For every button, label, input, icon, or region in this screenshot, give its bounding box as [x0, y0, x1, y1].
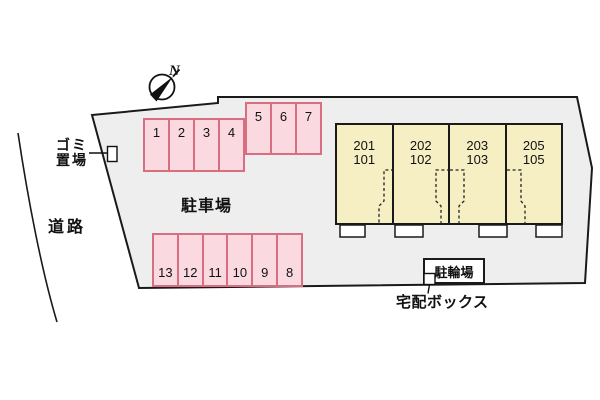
parking-row-1-4: 1 2 3 4	[143, 118, 245, 172]
unit-number-upper: 205	[507, 139, 562, 153]
parking-space-5: 5	[247, 104, 270, 153]
parking-row-5-7: 5 6 7	[245, 102, 322, 155]
unit-number-lower: 101	[337, 153, 392, 167]
garbage-label-line1: ゴミ	[56, 138, 88, 153]
parking-space-2: 2	[168, 120, 193, 170]
garbage-area-label: ゴミ 置場	[56, 138, 88, 168]
parking-space-7: 7	[295, 104, 320, 153]
porch-unit-205	[536, 225, 562, 237]
parking-space-10: 10	[226, 235, 251, 285]
parking-space-4: 4	[218, 120, 243, 170]
parking-space-1: 1	[145, 120, 168, 170]
bicycle-parking-box: 駐輪場	[423, 258, 485, 284]
parking-space-11: 11	[202, 235, 227, 285]
building-unit-202-102: 202 102	[392, 125, 449, 223]
unit-number-upper: 203	[450, 139, 505, 153]
porch-unit-202	[395, 225, 423, 237]
parking-lot-label: 駐車場	[181, 192, 232, 216]
site-plan: 1 2 3 4 5 6 7 13 12 11 10 9 8 201 101 20…	[0, 0, 600, 400]
parking-space-3: 3	[193, 120, 218, 170]
apartment-building: 201 101 202 102 203 103 205 105	[335, 123, 563, 225]
building-unit-201-101: 201 101	[337, 125, 392, 223]
building-unit-203-103: 203 103	[448, 125, 505, 223]
garbage-label-line2: 置場	[56, 153, 88, 168]
unit-number-upper: 201	[337, 139, 392, 153]
parking-space-8: 8	[276, 235, 301, 285]
delivery-box-label: 宅配ボックス	[396, 291, 489, 312]
unit-number-upper: 202	[394, 139, 449, 153]
garbage-area-marker	[89, 147, 117, 162]
parking-space-6: 6	[270, 104, 295, 153]
parking-row-8-13: 13 12 11 10 9 8	[152, 233, 303, 287]
north-compass-icon: N	[150, 63, 182, 102]
parking-space-12: 12	[177, 235, 202, 285]
road-label: 道路	[48, 213, 86, 237]
parking-space-9: 9	[251, 235, 276, 285]
unit-number-lower: 102	[394, 153, 449, 167]
porch-unit-201	[340, 225, 365, 237]
parking-space-13: 13	[154, 235, 177, 285]
compass-north-text: N	[168, 63, 181, 79]
building-unit-205-105: 205 105	[505, 125, 562, 223]
entrance-porches	[340, 225, 562, 237]
porch-unit-203	[479, 225, 507, 237]
unit-number-lower: 105	[507, 153, 562, 167]
unit-number-lower: 103	[450, 153, 505, 167]
